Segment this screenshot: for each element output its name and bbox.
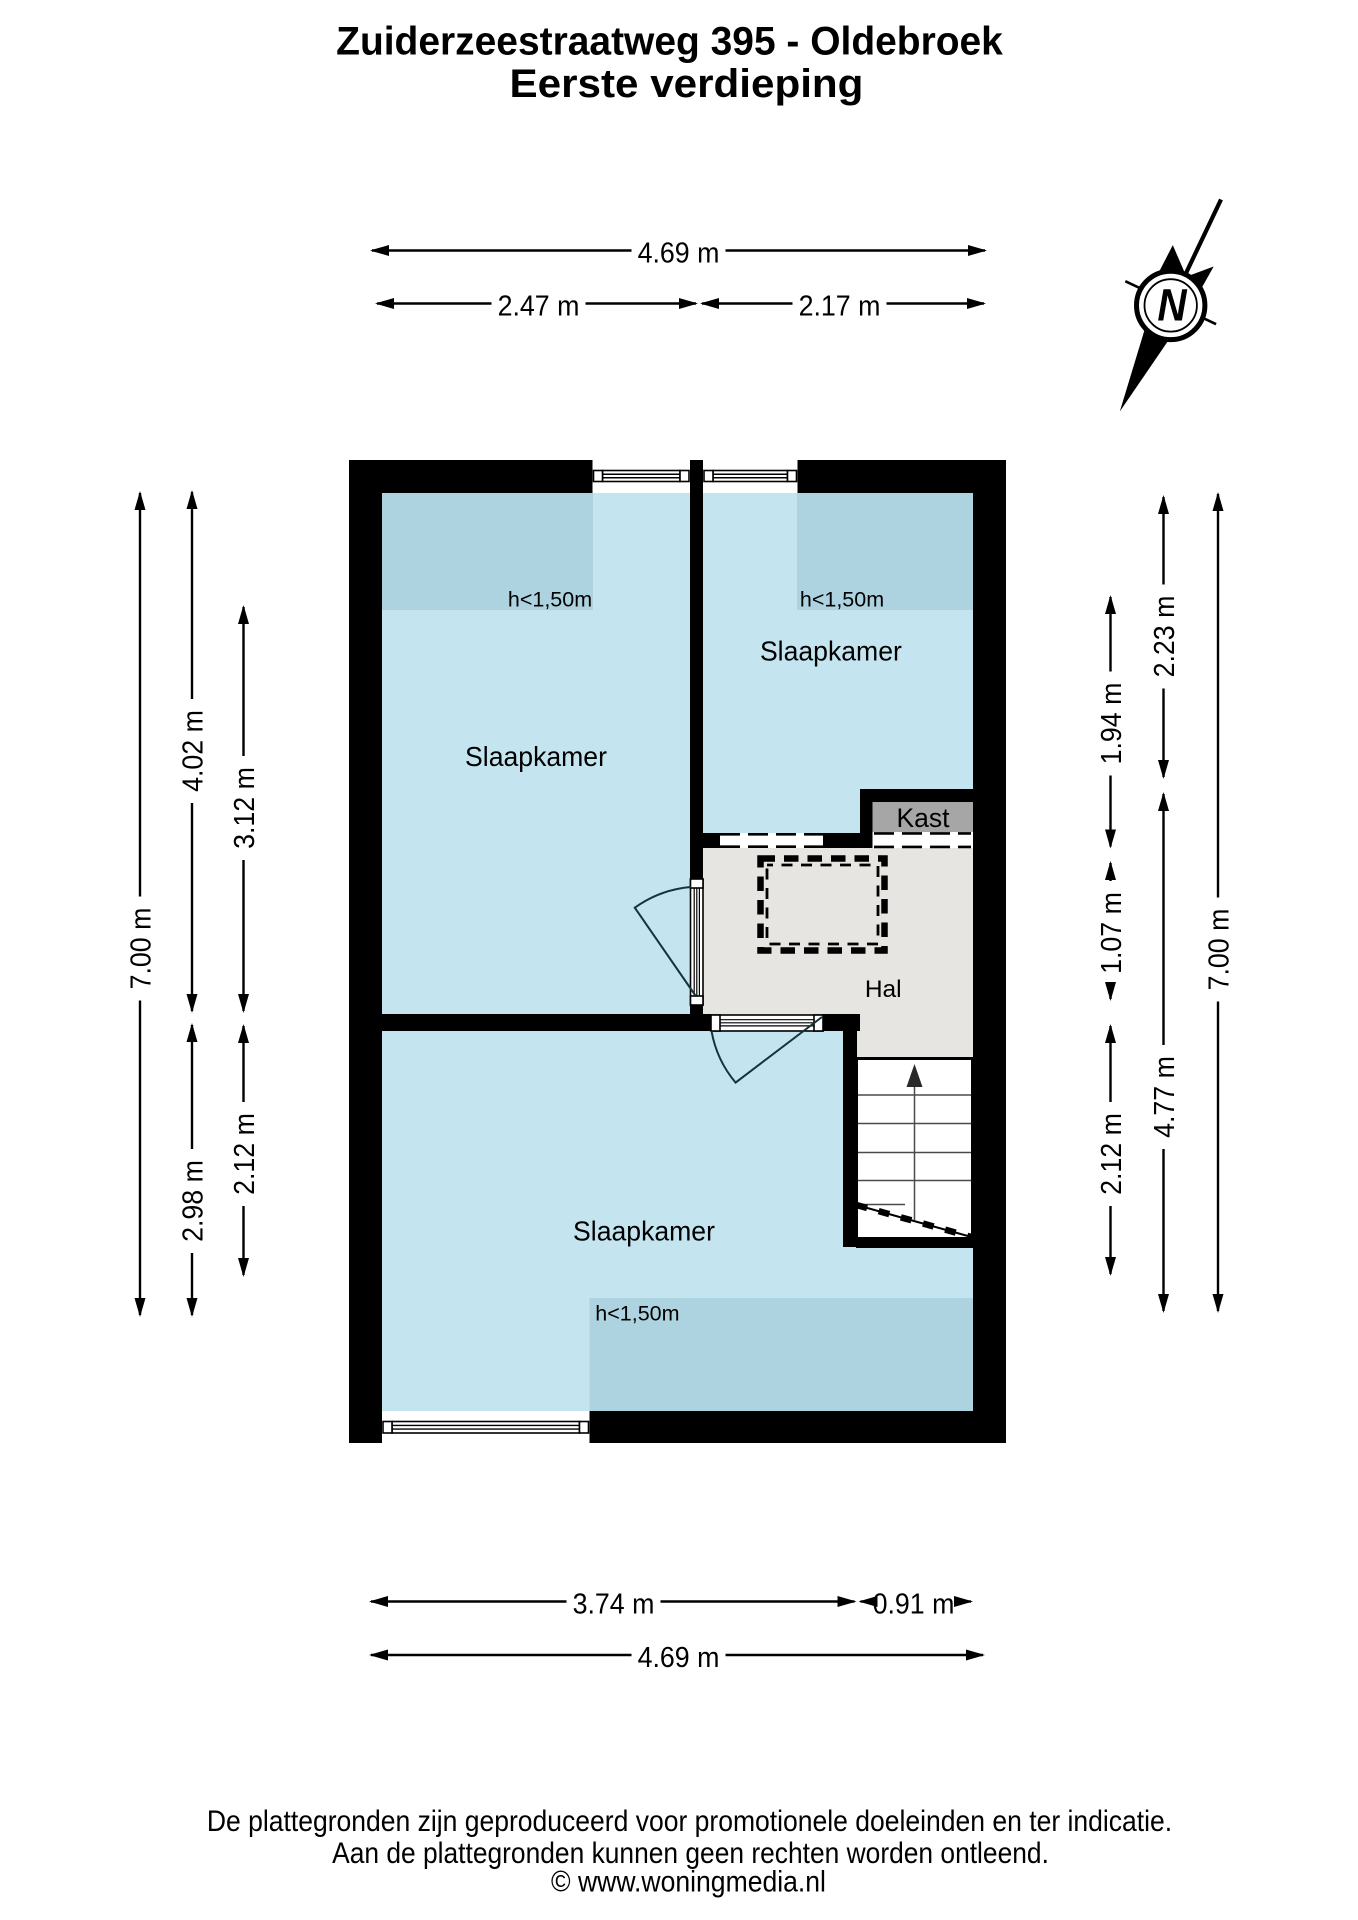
svg-text:Kast: Kast [896,803,950,833]
svg-text:4.69 m: 4.69 m [638,1641,720,1673]
svg-text:2.23 m: 2.23 m [1148,596,1180,678]
svg-text:0.91 m: 0.91 m [873,1588,955,1620]
svg-text:2.12 m: 2.12 m [1095,1113,1127,1195]
svg-text:2.12 m: 2.12 m [228,1113,260,1195]
svg-text:Slaapkamer: Slaapkamer [573,1215,715,1247]
svg-text:© www.woningmedia.nl: © www.woningmedia.nl [551,1865,826,1899]
svg-text:4.02 m: 4.02 m [177,710,209,792]
svg-text:1.94 m: 1.94 m [1095,683,1127,765]
svg-text:h<1,50m: h<1,50m [800,587,884,611]
svg-text:2.47 m: 2.47 m [498,290,580,322]
svg-text:2.98 m: 2.98 m [177,1160,209,1242]
svg-text:h<1,50m: h<1,50m [595,1302,679,1326]
svg-text:Slaapkamer: Slaapkamer [465,741,607,773]
svg-text:3.12 m: 3.12 m [228,767,260,849]
svg-text:2.17 m: 2.17 m [799,290,881,322]
svg-text:h<1,50m: h<1,50m [508,587,592,611]
svg-text:Slaapkamer: Slaapkamer [760,635,902,667]
svg-text:1.07 m: 1.07 m [1095,892,1127,974]
svg-text:7.00 m: 7.00 m [125,908,157,990]
svg-text:Eerste verdieping: Eerste verdieping [510,61,864,106]
svg-text:7.00 m: 7.00 m [1203,909,1235,991]
svg-text:4.69 m: 4.69 m [638,237,720,269]
svg-text:De plattegronden zijn geproduc: De plattegronden zijn geproduceerd voor … [207,1803,1172,1837]
svg-text:Zuiderzeestraatweg 395 - Oldeb: Zuiderzeestraatweg 395 - Oldebroek [336,19,1003,64]
svg-text:Hal: Hal [865,976,902,1003]
svg-text:N: N [1157,281,1187,331]
svg-text:3.74 m: 3.74 m [573,1588,655,1620]
svg-text:4.77 m: 4.77 m [1148,1056,1180,1138]
